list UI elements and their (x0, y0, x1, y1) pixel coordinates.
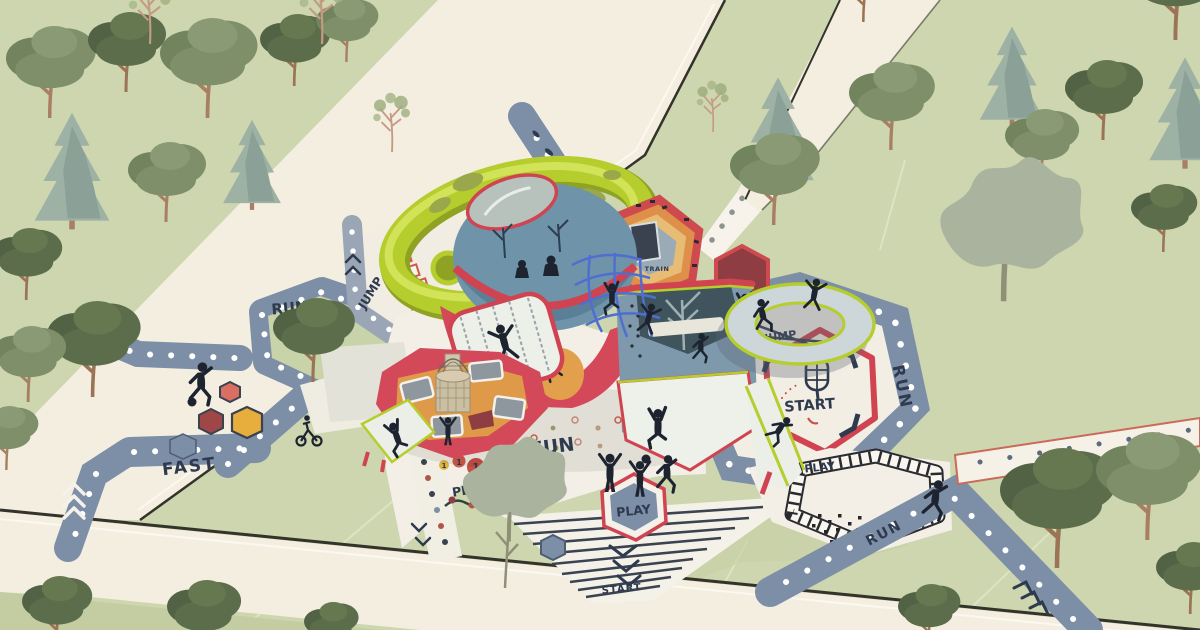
hexagon-pad-icon-darkred (199, 409, 223, 434)
hexagon-pad-icon-yellow (232, 407, 262, 438)
number-badge: 1 (442, 462, 447, 470)
ball-icon (188, 398, 197, 407)
scene-canvas: 1 1 1 4 3 (0, 0, 1200, 630)
trampoline-mat (493, 396, 525, 420)
hexagon-pad-icon-blue (170, 434, 196, 459)
train-label: TRAIN (645, 265, 670, 273)
hexagon-pad-icon-salmon (220, 382, 240, 402)
trampoline-mat (469, 360, 503, 381)
hexagon-pad-icon-blue (541, 535, 565, 560)
playground-rendering: 1 1 1 4 3 (0, 0, 1200, 630)
ball-icon (642, 455, 651, 464)
